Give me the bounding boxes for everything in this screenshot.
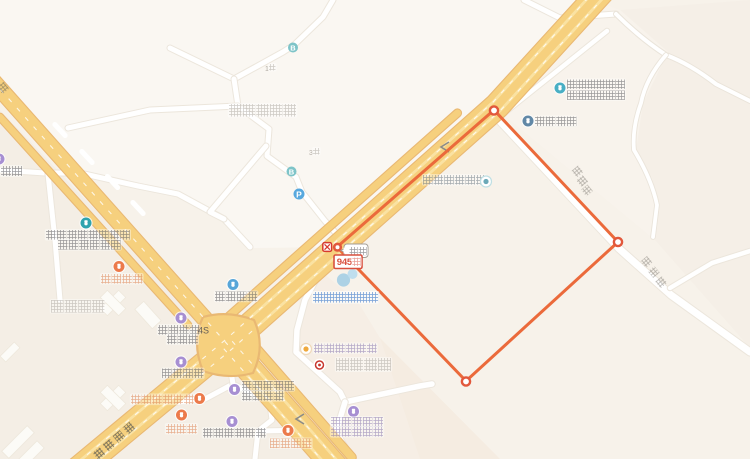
svg-text:945: 945 xyxy=(337,257,353,268)
svg-text:B: B xyxy=(289,168,295,177)
svg-text:B: B xyxy=(290,44,296,53)
svg-text:P: P xyxy=(296,190,302,200)
svg-text:4S: 4S xyxy=(198,326,209,336)
